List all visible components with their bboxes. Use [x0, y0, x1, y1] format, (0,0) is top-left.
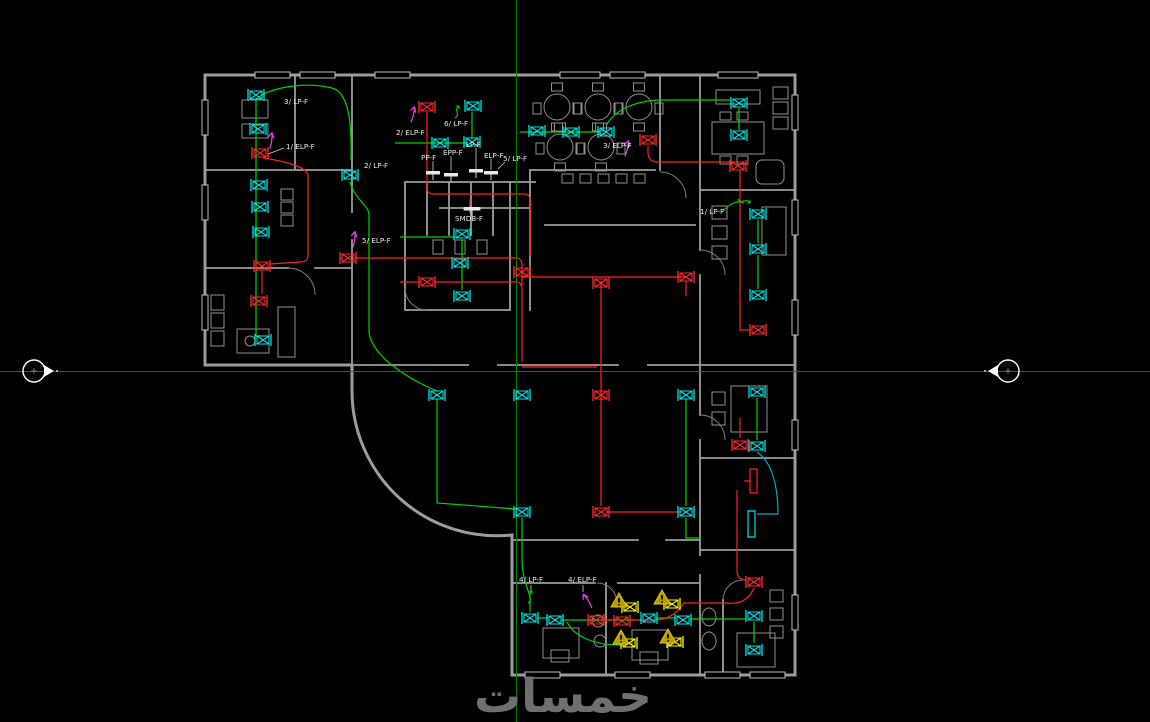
homerun-arrow-icon — [405, 107, 421, 123]
window-marks — [202, 72, 798, 678]
windows-layer — [202, 72, 798, 678]
construction-lines-layer — [0, 0, 1150, 722]
distribution-panel-symbol — [444, 173, 458, 182]
distribution-panel-symbol — [426, 171, 440, 180]
khamsat-watermark: خمسات — [474, 669, 652, 722]
circuit-label-elp5: 5/ ELP-F — [362, 236, 391, 245]
lighting-outlet-symbol — [749, 386, 765, 398]
circuit-label-lp5: 5/ LP-F — [503, 154, 527, 163]
lighting-outlet-symbol — [750, 243, 766, 255]
lighting-outlet-symbol — [563, 126, 579, 138]
lighting-outlet-symbol — [454, 290, 470, 302]
circuit-label-lp2: 2/ LP-F — [364, 161, 388, 170]
lighting-outlet-symbol — [731, 97, 747, 109]
lighting-outlet-symbol — [678, 389, 694, 401]
circuit-label-lpf: LP-F — [466, 140, 481, 149]
armchair-desk — [756, 160, 784, 184]
panel-symbols-layer — [426, 169, 498, 216]
lighting-outlet-symbol — [731, 129, 747, 141]
lighting-outlet-symbol — [547, 614, 563, 626]
emergency-light-fixture — [748, 511, 755, 537]
lighting-outlet-symbol — [749, 440, 765, 452]
power-outlet-symbol — [251, 295, 267, 307]
lighting-outlet-symbol — [465, 100, 481, 112]
furniture-outlines — [211, 87, 788, 667]
lighting-outlet-symbol — [529, 125, 545, 137]
aux-circuit-wire — [757, 452, 778, 514]
circuit-label-elp3: 3/ ELP-F — [603, 141, 632, 150]
lighting-outlet-symbol — [250, 123, 266, 135]
lighting-outlet-symbol — [750, 289, 766, 301]
lighting-outlet-symbol — [253, 226, 269, 238]
lighting-outlet-symbol — [514, 506, 530, 518]
switch-symbol — [455, 106, 459, 118]
label-leader-lines — [268, 148, 583, 592]
floor-plan-drawing[interactable]: 3/ LP-F1/ ELP-F2/ ELP-F6/ LP-FPP-FEPP-FL… — [0, 0, 1150, 722]
marker-grip-dot — [984, 370, 986, 372]
circuit-label-lp3: 3/ LP-F — [284, 97, 308, 106]
lighting-outlet-symbol — [522, 612, 538, 624]
lighting-outlet-symbol — [514, 389, 530, 401]
lighting-outlet-symbol — [746, 644, 762, 656]
circuit-label-elp4: 4/ ELP-F — [568, 575, 597, 584]
power-outlet-symbol — [732, 439, 748, 451]
circuit-label-elp2: 2/ ELP-F — [396, 128, 425, 137]
power-outlet-symbol — [588, 614, 604, 626]
chair — [245, 336, 255, 346]
lighting-outlet-symbol — [429, 389, 445, 401]
lighting-outlet-symbol — [255, 334, 271, 346]
wc-fixture — [702, 608, 716, 626]
lighting-outlet-symbol — [641, 612, 657, 624]
lighting-outlet-symbol — [252, 201, 268, 213]
warning-triangle-icon — [654, 590, 670, 604]
lighting-outlet-symbol — [598, 126, 614, 138]
circuit-label-lp4: 4/ LP-F — [519, 575, 543, 584]
circuit-label-elpf: ELP-F — [484, 151, 503, 160]
homerun-arrow-icon — [346, 231, 362, 247]
distribution-panel-symbol — [484, 171, 498, 180]
power-outlet-symbol — [514, 266, 530, 278]
lighting-outlet-symbol — [454, 228, 470, 240]
power-outlet-symbol — [340, 252, 356, 264]
circuit-label-ppf: PP-F — [421, 153, 436, 162]
warning-triangle-icon — [660, 629, 676, 643]
power-outlet-symbol — [419, 276, 435, 288]
power-outlet-symbol — [640, 134, 656, 146]
power-outlet-symbol — [419, 101, 435, 113]
power-outlet-symbol — [593, 389, 609, 401]
lighting-outlet-symbol — [452, 257, 468, 269]
circuit-label-elp1: 1/ ELP-F — [286, 142, 315, 151]
circuit-label-smdb: SMDB-F — [455, 214, 483, 223]
power-outlet-symbol — [254, 260, 270, 272]
lighting-outlet-symbol — [746, 610, 762, 622]
warning-triangle-icon — [611, 593, 627, 607]
lighting-outlet-symbol — [678, 506, 694, 518]
power-fixture — [750, 469, 757, 493]
cad-model-viewport[interactable]: 3/ LP-F1/ ELP-F2/ ELP-F6/ LP-FPP-FEPP-FL… — [0, 0, 1150, 722]
power-outlet-symbol — [593, 506, 609, 518]
power-outlet-symbol — [750, 324, 766, 336]
power-outlet-symbol — [678, 271, 694, 283]
lighting-outlet-symbol — [750, 208, 766, 220]
power-outlet-symbol — [614, 615, 630, 627]
power-outlet-symbol — [730, 160, 746, 172]
lighting-outlet-symbol — [251, 179, 267, 191]
power-outlet-symbol — [252, 147, 268, 159]
electrical-devices-layer — [248, 89, 766, 656]
circuit-label-eppf: EPP-F — [443, 148, 463, 157]
marker-grip-dot — [56, 370, 58, 372]
lighting-outlet-symbol — [675, 614, 691, 626]
circuit-label-lp6: 6/ LP-F — [444, 119, 468, 128]
power-outlet-symbol — [593, 277, 609, 289]
power-outlet-symbol — [746, 576, 762, 588]
lighting-outlet-symbol — [342, 169, 358, 181]
wc-fixture — [702, 632, 716, 650]
homerun-arrow-icon — [580, 594, 594, 608]
warning-triangle-icon — [613, 630, 629, 644]
distribution-panel-symbol — [469, 169, 483, 178]
circuit-label-lp1: 1/ LP-F — [700, 207, 724, 216]
chair — [594, 635, 606, 647]
lighting-outlet-symbol — [248, 89, 264, 101]
